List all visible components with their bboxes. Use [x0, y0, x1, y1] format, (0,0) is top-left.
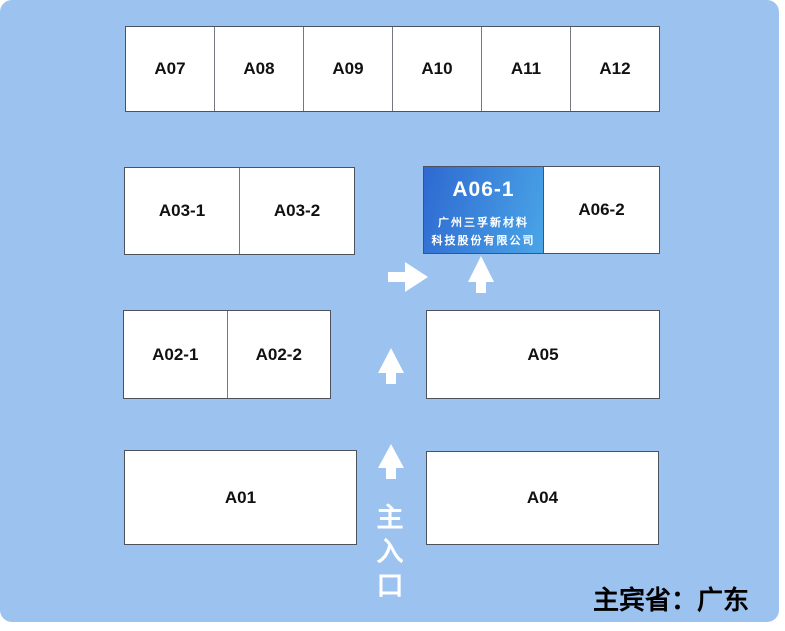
booth-a06-1-highlight: A06-1 广州三孚新材料 科技股份有限公司	[424, 167, 544, 253]
booth-a09: A09	[304, 27, 393, 111]
right-arrow-icon	[388, 261, 428, 298]
up-arrow-entrance-icon	[377, 444, 405, 484]
booth-a02-2: A02-2	[228, 311, 331, 398]
booth-a03-2: A03-2	[240, 168, 354, 254]
booth-row-a06: A06-1 广州三孚新材料 科技股份有限公司 A06-2	[423, 166, 660, 254]
main-entrance-char-3: 口	[377, 569, 404, 603]
floorplan-canvas: A07 A08 A09 A10 A11 A12 A03-1 A03-2 A06-…	[0, 0, 779, 622]
booth-a12: A12	[571, 27, 659, 111]
booth-row-top: A07 A08 A09 A10 A11 A12	[125, 26, 660, 112]
main-entrance-label: 主 入 口	[374, 501, 406, 603]
company-name-line2: 科技股份有限公司	[432, 235, 536, 247]
booth-row-a03: A03-1 A03-2	[124, 167, 355, 255]
booth-row-a02: A02-1 A02-2	[123, 310, 331, 399]
up-arrow-mid-icon	[377, 348, 405, 389]
main-entrance-char-2: 入	[377, 535, 404, 569]
booth-a04: A04	[426, 451, 659, 545]
booth-a04-label: A04	[527, 488, 558, 508]
booth-a05-label: A05	[527, 345, 558, 365]
guest-province-label: 主宾省：广东	[593, 580, 763, 617]
booth-a06-2: A06-2	[544, 167, 659, 253]
booth-a06-1-label: A06-1	[452, 178, 514, 202]
booth-a08: A08	[215, 27, 304, 111]
booth-a07: A07	[126, 27, 215, 111]
booth-a10: A10	[393, 27, 482, 111]
booth-a05: A05	[426, 310, 660, 399]
booth-a01: A01	[124, 450, 357, 545]
booth-a11: A11	[482, 27, 571, 111]
up-arrow-a06-icon	[467, 256, 495, 298]
booth-a02-1: A02-1	[124, 311, 228, 398]
main-entrance-char-1: 主	[377, 501, 404, 535]
company-name-line1: 广州三孚新材料	[438, 217, 529, 229]
booth-a01-label: A01	[225, 488, 256, 508]
booth-a03-1: A03-1	[125, 168, 240, 254]
